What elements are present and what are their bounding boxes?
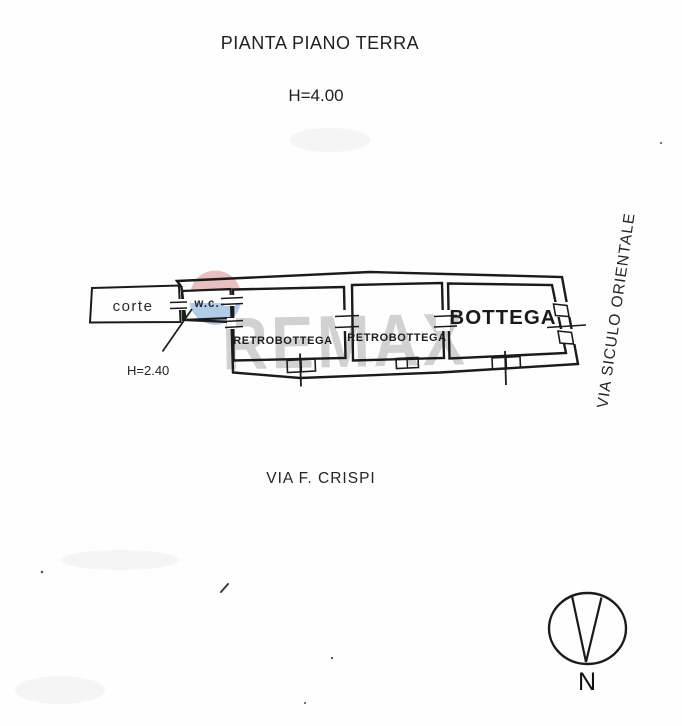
page-title: PIANTA PIANO TERRA — [221, 33, 419, 53]
floor-plan-drawing: REMAX — [0, 0, 682, 726]
compass-needle-left — [572, 596, 586, 662]
scanned-floor-plan-page: REMAX — [0, 0, 682, 726]
room-label-retrobottega-2: RETROBOTTEGA — [347, 332, 446, 344]
north-compass: N — [549, 593, 626, 696]
room-label-bottega: BOTTEGA — [449, 306, 556, 329]
floor-height-label: H=4.00 — [288, 86, 343, 105]
compass-needle-right — [586, 598, 602, 663]
street-label-bottom: VIA F. CRISPI — [266, 470, 375, 487]
scan-noise — [15, 128, 662, 704]
street-label-right: VIA SICULO ORIENTALE — [594, 212, 638, 410]
wc-height-label: H=2.40 — [127, 363, 169, 378]
wc-height-leader-line — [163, 309, 193, 352]
room-label-wc: w.c. — [193, 298, 219, 310]
room-label-corte: corte — [113, 298, 154, 315]
compass-north-label: N — [578, 668, 596, 696]
room-label-retrobottega-1: RETROBOTTEGA — [233, 335, 332, 347]
